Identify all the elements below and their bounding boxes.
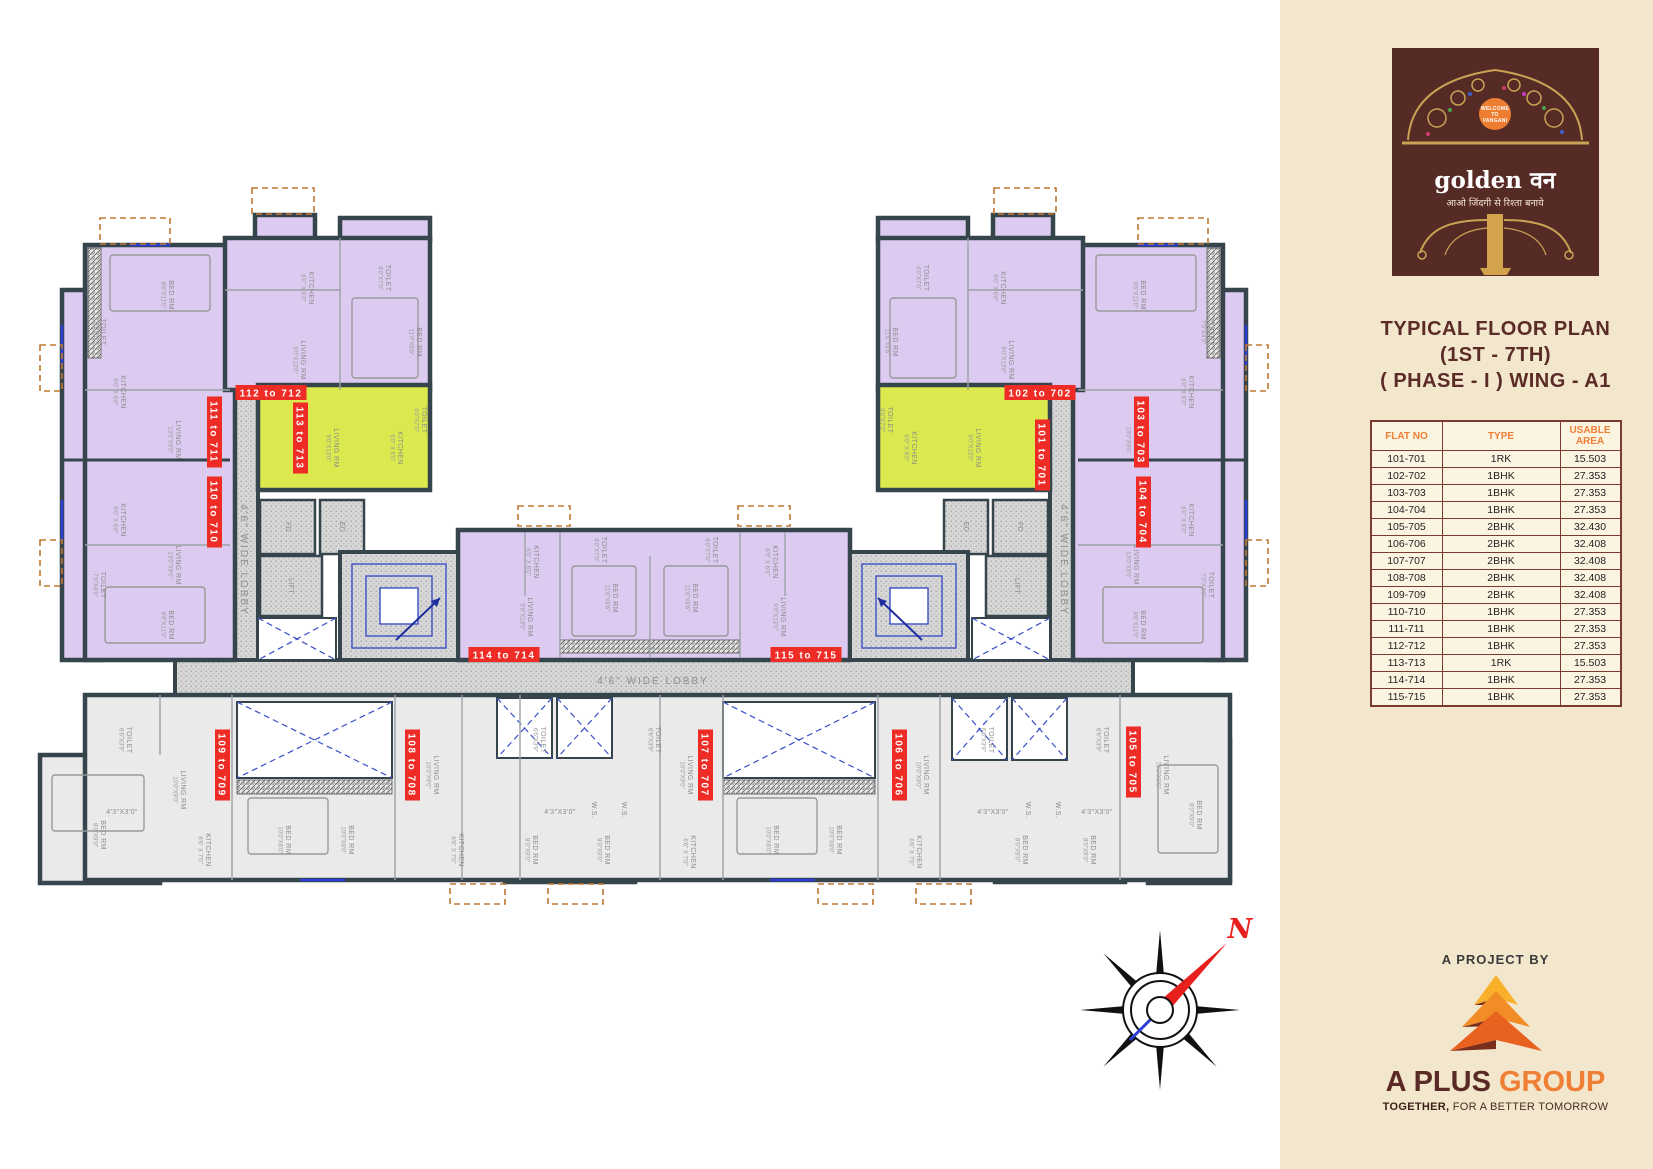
svg-text:KITCHEN: KITCHEN [1187,375,1194,409]
svg-text:6'0" X 6'0": 6'0" X 6'0" [764,548,770,575]
flat-range-label: 111 to 711 [207,397,222,468]
svg-text:4'3"X3'0": 4'3"X3'0" [977,809,1009,816]
table-row: 114-7141BHK27.353 [1371,672,1621,689]
svg-text:LIVING RM: LIVING RM [1007,340,1014,379]
svg-text:W.S.: W.S. [590,802,597,818]
room-label: FD [1016,522,1023,532]
table-row: 111-7111BHK27.353 [1371,621,1621,638]
svg-text:TOILET: TOILET [539,727,546,754]
svg-text:4'6" WIDE LOBBY: 4'6" WIDE LOBBY [1058,504,1069,616]
balcony-outline [916,884,971,904]
room-label: ED [338,522,345,533]
svg-text:13'0"X9'0": 13'0"X9'0" [1125,551,1131,578]
table-row: 105-7052BHK32.430 [1371,519,1621,536]
table-cell: 105-705 [1371,519,1443,536]
table-cell: 104-704 [1371,502,1443,519]
svg-text:4'0"X7'0": 4'0"X7'0" [879,408,885,432]
svg-text:8'6"X11'0": 8'6"X11'0" [160,612,166,639]
room-label: LIFT [287,578,294,594]
flat-range-label: 115 to 715 [771,647,842,662]
table-cell: 32.430 [1560,519,1621,536]
table-cell: 103-703 [1371,485,1443,502]
svg-text:LIVING RM: LIVING RM [1162,755,1169,794]
balcony-outline [738,506,790,526]
table-cell: 114-714 [1371,672,1443,689]
svg-text:BED RM: BED RM [347,825,354,855]
svg-text:101 to 701: 101 to 701 [1036,423,1047,486]
room-label: LIFT [1013,578,1020,594]
flat-range-label: 113 to 713 [293,403,308,474]
svg-text:112 to 712: 112 to 712 [240,389,303,400]
svg-text:102 to 702: 102 to 702 [1008,389,1071,400]
table-row: 108-7082BHK32.408 [1371,570,1621,587]
col-header-type: TYPE [1442,421,1560,451]
svg-text:4'3"X3'0": 4'3"X3'0" [544,809,576,816]
svg-text:4'0"X7'0": 4'0"X7'0" [593,538,599,562]
svg-text:TOILET: TOILET [1207,572,1214,599]
svg-text:106 to 706: 106 to 706 [893,733,904,796]
floor-plan-drawing: BED RM8'6"X11'0"TOILET7'0"X4'0"KITCHEN6'… [0,0,1280,1169]
svg-text:6'6"X3'9": 6'6"X3'9" [118,728,124,752]
brand-logo: WELCOME TO VANGANI golden वन आओ जिंदगी स… [1392,48,1599,276]
table-cell: 115-715 [1371,689,1443,707]
svg-text:114 to 714: 114 to 714 [473,651,536,662]
svg-text:ED: ED [962,522,969,533]
svg-text:TOILET: TOILET [922,265,929,292]
svg-text:11'0"X8'6": 11'0"X8'6" [884,329,890,356]
balcony-outline [252,188,314,214]
svg-text:KITCHEN: KITCHEN [532,545,539,579]
svg-text:4'6" WIDE LOBBY: 4'6" WIDE LOBBY [238,504,249,616]
svg-text:9'0"X13'0": 9'0"X13'0" [967,434,973,461]
svg-text:6'6" X 7'0": 6'6" X 7'0" [908,838,914,865]
x-box [972,618,1050,660]
svg-text:7'0"X4'0": 7'0"X4'0" [92,320,98,344]
svg-text:6'6"X3'9": 6'6"X3'9" [980,728,986,752]
table-cell: 15.503 [1560,451,1621,468]
svg-text:TOILET: TOILET [99,572,106,599]
table-cell: 1BHK [1442,604,1560,621]
svg-text:KITCHEN: KITCHEN [999,271,1006,305]
svg-text:9'0"X13'0": 9'0"X13'0" [772,603,778,630]
project-by-block: A PROJECT BY A PLUS GROUP TOGETHER, FOR … [1338,952,1653,1113]
table-cell: 32.408 [1560,587,1621,604]
pyramid-logo-icon [1436,973,1556,1057]
svg-text:103 to 703: 103 to 703 [1135,400,1146,463]
project-kicker: A PROJECT BY [1338,952,1653,967]
balcony-outline [40,540,62,586]
table-cell: 1BHK [1442,621,1560,638]
svg-text:TOILET: TOILET [886,407,893,434]
flat-range-label: 102 to 702 [1005,385,1076,400]
svg-text:10'0"X9'0": 10'0"X9'0" [679,761,685,788]
table-cell: 111-711 [1371,621,1443,638]
svg-text:KITCHEN: KITCHEN [119,375,126,409]
svg-text:10'0"X9'0": 10'0"X9'0" [915,761,921,788]
svg-text:BED RM: BED RM [611,583,618,613]
room-label: W.S. [1054,802,1061,818]
svg-text:7'0"X4'0": 7'0"X4'0" [1200,320,1206,344]
svg-text:TOILET: TOILET [600,537,607,564]
table-cell: 101-701 [1371,451,1443,468]
table-cell: 27.353 [1560,672,1621,689]
x-box [237,702,392,778]
svg-text:6'6" X 7'0": 6'6" X 7'0" [197,836,203,863]
table-cell: 1BHK [1442,485,1560,502]
svg-text:111 to 711: 111 to 711 [208,401,219,463]
table-cell: 2BHK [1442,536,1560,553]
svg-text:TOILET: TOILET [711,537,718,564]
svg-text:8'0"X9'0": 8'0"X9'0" [524,838,530,862]
svg-text:6'6"X3'9": 6'6"X3'9" [647,728,653,752]
balcony-outline [818,884,873,904]
svg-text:11'0"X8'6": 11'0"X8'6" [684,585,690,612]
svg-text:9'0"X13'0": 9'0"X13'0" [292,346,298,373]
table-row: 104-7041BHK27.353 [1371,502,1621,519]
svg-text:10'0"X8'0": 10'0"X8'0" [277,826,283,853]
table-cell: 32.408 [1560,553,1621,570]
table-cell: 32.408 [1560,536,1621,553]
svg-text:KITCHEN: KITCHEN [119,503,126,537]
svg-text:LIFT: LIFT [1013,578,1020,594]
table-cell: 1BHK [1442,468,1560,485]
room-label: ED [962,522,969,533]
svg-text:BED RM: BED RM [415,327,422,357]
svg-text:LIVING RM: LIVING RM [174,545,181,584]
svg-text:FD: FD [284,522,291,532]
table-cell: 27.353 [1560,638,1621,655]
svg-text:BED RM: BED RM [284,825,291,855]
flat-range-label: 112 to 712 [236,385,307,400]
svg-text:10'0"X9'0": 10'0"X9'0" [172,776,178,803]
flat-range-label: 106 to 706 [892,730,907,801]
balcony-outline [548,884,603,904]
room-label: FD [284,522,291,532]
svg-text:108 to 708: 108 to 708 [406,733,417,796]
svg-text:9'0"X13'0": 9'0"X13'0" [519,603,525,630]
svg-text:4'3"X3'0": 4'3"X3'0" [1081,809,1113,816]
svg-text:W.S.: W.S. [620,802,627,818]
plan-title-line: TYPICAL FLOOR PLAN [1338,316,1653,342]
svg-text:6'0" X 6'0": 6'0" X 6'0" [389,434,395,461]
svg-text:8'0"X9'0": 8'0"X9'0" [92,823,98,847]
svg-text:6'0" X 6'0": 6'0" X 6'0" [525,548,531,575]
flat-range-label: 101 to 701 [1035,420,1050,491]
x-box [1012,698,1067,760]
brand-name: golden वन [1434,167,1556,194]
brand-tagline: आओ जिंदगी से रिश्ता बनाये [1446,197,1544,209]
svg-text:13'0"X9'0": 13'0"X9'0" [167,426,173,453]
svg-text:TOILET: TOILET [987,727,994,754]
plan-title-line: (1ST - 7TH) [1338,342,1653,368]
lobby-label: 4'6" WIDE LOBBY [238,504,249,616]
table-row: 113-7131RK15.503 [1371,655,1621,672]
balcony-outline [518,506,570,526]
room-label: W.S. [590,802,597,818]
svg-text:7'0"X4'0": 7'0"X4'0" [1200,573,1206,597]
svg-text:6'6" X 7'0": 6'6" X 7'0" [450,836,456,863]
flat-area-table: FLAT NO TYPE USABLE AREA 101-7011RK15.50… [1370,420,1622,707]
svg-text:TOILET: TOILET [654,727,661,754]
svg-text:10'0"X9'0": 10'0"X9'0" [1155,761,1161,788]
svg-text:4'0"X7'0": 4'0"X7'0" [915,266,921,290]
balcony-outline [450,884,505,904]
svg-text:W.S.: W.S. [1054,802,1061,818]
room-label: 4'3"X3'0" [544,809,576,816]
svg-text:TOILET: TOILET [125,727,132,754]
svg-text:VANGANI: VANGANI [1483,118,1508,124]
svg-text:KITCHEN: KITCHEN [910,431,917,465]
svg-text:BED RM: BED RM [1021,835,1028,865]
flat-range-label: 103 to 703 [1134,397,1149,468]
table-cell: 27.353 [1560,485,1621,502]
table-cell: 1BHK [1442,672,1560,689]
flat-range-label: 107 to 707 [698,730,713,801]
balcony-outline [1246,540,1268,586]
col-header-flat-no: FLAT NO [1371,421,1443,451]
svg-text:TOILET: TOILET [384,265,391,292]
table-cell: 112-712 [1371,638,1443,655]
table-cell: 1RK [1442,451,1560,468]
room-label: 4'3"X3'0" [977,809,1009,816]
svg-text:LIVING RM: LIVING RM [179,770,186,809]
svg-text:13'0"X9'0": 13'0"X9'0" [1125,426,1131,453]
svg-text:6'0" X 6'0": 6'0" X 6'0" [112,378,118,405]
plan-title-line: ( PHASE - I ) WING - A1 [1338,368,1653,394]
balcony-outline [1246,345,1268,391]
room-label: 4'3"X3'0" [1081,809,1113,816]
table-cell: 2BHK [1442,553,1560,570]
floor-plan-page: { "panel": { "logo": { "welcome_lines": … [0,0,1653,1169]
svg-text:TOILET: TOILET [1102,727,1109,754]
svg-text:BED RM: BED RM [1139,280,1146,310]
table-row: 112-7121BHK27.353 [1371,638,1621,655]
room-label: W.S. [620,802,627,818]
table-cell: 2BHK [1442,570,1560,587]
svg-text:6'0" X 6'0": 6'0" X 6'0" [300,274,306,301]
info-panel: WELCOME TO VANGANI golden वन आओ जिंदगी स… [1280,0,1653,1169]
table-cell: 27.353 [1560,604,1621,621]
svg-text:LIVING RM: LIVING RM [974,428,981,467]
svg-text:TOILET: TOILET [420,407,427,434]
svg-text:10'0"X8'0": 10'0"X8'0" [828,826,834,853]
table-row: 115-7151BHK27.353 [1371,689,1621,707]
svg-text:10'0"X8'0": 10'0"X8'0" [340,826,346,853]
table-header-row: FLAT NO TYPE USABLE AREA [1371,421,1621,451]
brand-logo-art: WELCOME TO VANGANI golden वन आओ जिंदगी स… [1392,48,1599,276]
svg-text:115 to 715: 115 to 715 [775,651,838,662]
svg-text:BED RM: BED RM [835,825,842,855]
table-cell: 27.353 [1560,621,1621,638]
svg-text:10'0"X8'0": 10'0"X8'0" [765,826,771,853]
svg-text:KITCHEN: KITCHEN [771,545,778,579]
flat-range-label: 109 to 709 [215,730,230,801]
north-label: N [1227,914,1254,945]
room-label: W.S. [1024,802,1031,818]
flat-range-label: 108 to 708 [405,730,420,801]
svg-text:LIVING RM: LIVING RM [779,597,786,636]
svg-text:109 to 709: 109 to 709 [216,733,227,796]
svg-text:6'6" X 7'0": 6'6" X 7'0" [682,838,688,865]
table-cell: 1BHK [1442,689,1560,707]
table-cell: 107-707 [1371,553,1443,570]
svg-text:BED RM: BED RM [603,835,610,865]
svg-text:4'0"X7'0": 4'0"X7'0" [377,266,383,290]
svg-text:LIVING RM: LIVING RM [922,755,929,794]
table-row: 102-7021BHK27.353 [1371,468,1621,485]
table-cell: 1BHK [1442,502,1560,519]
room-label: 4'3"X3'0" [106,809,138,816]
svg-text:LIVING RM: LIVING RM [432,755,439,794]
svg-text:6'0" X 6'0": 6'0" X 6'0" [1180,506,1186,533]
svg-text:8'6"X11'0": 8'6"X11'0" [160,282,166,309]
svg-text:4'0"X7'0": 4'0"X7'0" [413,408,419,432]
svg-text:10'0"X9'0": 10'0"X9'0" [425,761,431,788]
plan-title: TYPICAL FLOOR PLAN (1ST - 7TH) ( PHASE -… [1338,316,1653,394]
svg-text:KITCHEN: KITCHEN [915,835,922,869]
table-cell: 106-706 [1371,536,1443,553]
table-row: 101-7011RK15.503 [1371,451,1621,468]
col-header-usable-area: USABLE AREA [1560,421,1621,451]
table-cell: 27.353 [1560,689,1621,707]
table-row: 109-7092BHK32.408 [1371,587,1621,604]
svg-text:BED RM: BED RM [772,825,779,855]
x-box [952,698,1007,760]
svg-text:LIVING RM: LIVING RM [174,420,181,459]
svg-text:7'0"X4'0": 7'0"X4'0" [92,573,98,597]
flat-block-1rk [258,385,430,490]
svg-text:6'0" X 6'0": 6'0" X 6'0" [903,434,909,461]
lobby-label: 4'6" WIDE LOBBY [1058,504,1069,616]
table-cell: 32.408 [1560,570,1621,587]
svg-text:LIFT: LIFT [287,578,294,594]
flat-range-label: 105 to 705 [1126,727,1141,798]
svg-text:BED RM: BED RM [691,583,698,613]
svg-text:BED RM: BED RM [167,610,174,640]
svg-text:4'6" WIDE LOBBY: 4'6" WIDE LOBBY [597,676,709,687]
svg-text:4'3"X3'0": 4'3"X3'0" [106,809,138,816]
svg-text:105 to 705: 105 to 705 [1127,730,1138,793]
table-cell: 110-710 [1371,604,1443,621]
lobby-label: 4'6" WIDE LOBBY [597,676,709,687]
table-row: 107-7072BHK32.408 [1371,553,1621,570]
svg-text:8'6"X11'0": 8'6"X11'0" [1132,282,1138,309]
svg-text:BED RM: BED RM [167,280,174,310]
svg-text:11'0"X8'6": 11'0"X8'6" [408,329,414,356]
group-tagline: TOGETHER, FOR A BETTER TOMORROW [1338,1101,1653,1113]
table-row: 103-7031BHK27.353 [1371,485,1621,502]
svg-text:KITCHEN: KITCHEN [307,271,314,305]
balcony-outline [100,218,170,244]
svg-text:6'0" X 6'0": 6'0" X 6'0" [992,274,998,301]
x-box [557,698,612,758]
svg-text:LIVING RM: LIVING RM [299,340,306,379]
svg-text:4'0"X7'0": 4'0"X7'0" [704,538,710,562]
svg-text:BED RM: BED RM [891,327,898,357]
balcony-outline [994,188,1056,214]
table-cell: 1RK [1442,655,1560,672]
svg-text:FD: FD [1016,522,1023,532]
svg-text:LIVING RM: LIVING RM [332,428,339,467]
svg-text:8'0"X9'0": 8'0"X9'0" [1188,803,1194,827]
table-cell: 102-702 [1371,468,1443,485]
svg-text:BED RM: BED RM [531,835,538,865]
svg-text:KITCHEN: KITCHEN [396,431,403,465]
table-cell: 27.353 [1560,502,1621,519]
svg-text:8'0"X9'0": 8'0"X9'0" [1014,838,1020,862]
group-name: A PLUS GROUP [1338,1066,1653,1099]
svg-text:11'0"X8'6": 11'0"X8'6" [604,585,610,612]
x-box [258,618,336,660]
svg-text:13'0"X9'0": 13'0"X9'0" [167,551,173,578]
svg-text:6'6"X3'9": 6'6"X3'9" [1095,728,1101,752]
svg-text:BED RM: BED RM [1089,835,1096,865]
svg-text:KITCHEN: KITCHEN [204,833,211,867]
svg-text:9'0"X13'0": 9'0"X13'0" [325,434,331,461]
svg-text:KITCHEN: KITCHEN [689,835,696,869]
svg-text:TOILET: TOILET [1207,319,1214,346]
svg-text:LIVING RM: LIVING RM [686,755,693,794]
svg-text:ED: ED [338,522,345,533]
svg-text:107 to 707: 107 to 707 [699,733,710,796]
svg-text:LIVING RM: LIVING RM [526,597,533,636]
svg-text:9'0"X13'0": 9'0"X13'0" [1000,346,1006,373]
balcony-outline [1138,218,1208,244]
svg-text:BED RM: BED RM [1139,610,1146,640]
svg-text:8'0"X9'0": 8'0"X9'0" [1082,838,1088,862]
table-cell: 2BHK [1442,519,1560,536]
table-cell: 27.353 [1560,468,1621,485]
wardrobe [237,780,392,794]
table-row: 110-7101BHK27.353 [1371,604,1621,621]
svg-text:110 to 710: 110 to 710 [208,481,219,544]
svg-text:LIVING RM: LIVING RM [1132,545,1139,584]
svg-text:6'0" X 6'0": 6'0" X 6'0" [1180,378,1186,405]
wardrobe [723,780,875,794]
svg-text:6'0" X 6'0": 6'0" X 6'0" [112,506,118,533]
flat-block [878,238,1083,390]
svg-text:W.S.: W.S. [1024,802,1031,818]
svg-text:KITCHEN: KITCHEN [457,833,464,867]
svg-text:KITCHEN: KITCHEN [1187,503,1194,537]
table-cell: 109-709 [1371,587,1443,604]
table-cell: 1BHK [1442,638,1560,655]
table-cell: 2BHK [1442,587,1560,604]
svg-text:104 to 704: 104 to 704 [1137,480,1148,543]
table-cell: 15.503 [1560,655,1621,672]
svg-text:TOILET: TOILET [99,319,106,346]
flat-range-label: 110 to 710 [207,477,222,548]
table-cell: 108-708 [1371,570,1443,587]
balcony-outline [40,345,62,391]
flat-range-label: 114 to 714 [469,647,540,662]
svg-text:BED RM: BED RM [1195,800,1202,830]
flat-block [225,238,430,390]
x-box [723,702,875,778]
svg-text:6'6"X3'9": 6'6"X3'9" [532,728,538,752]
svg-text:113 to 713: 113 to 713 [294,407,305,470]
svg-text:8'6"X11'0": 8'6"X11'0" [1132,612,1138,639]
flat-range-label: 104 to 704 [1136,477,1151,548]
svg-text:BED RM: BED RM [99,820,106,850]
table-row: 106-7062BHK32.408 [1371,536,1621,553]
table-cell: 113-713 [1371,655,1443,672]
compass-rose: N [1080,914,1254,1090]
svg-text:8'0"X9'0": 8'0"X9'0" [596,838,602,862]
